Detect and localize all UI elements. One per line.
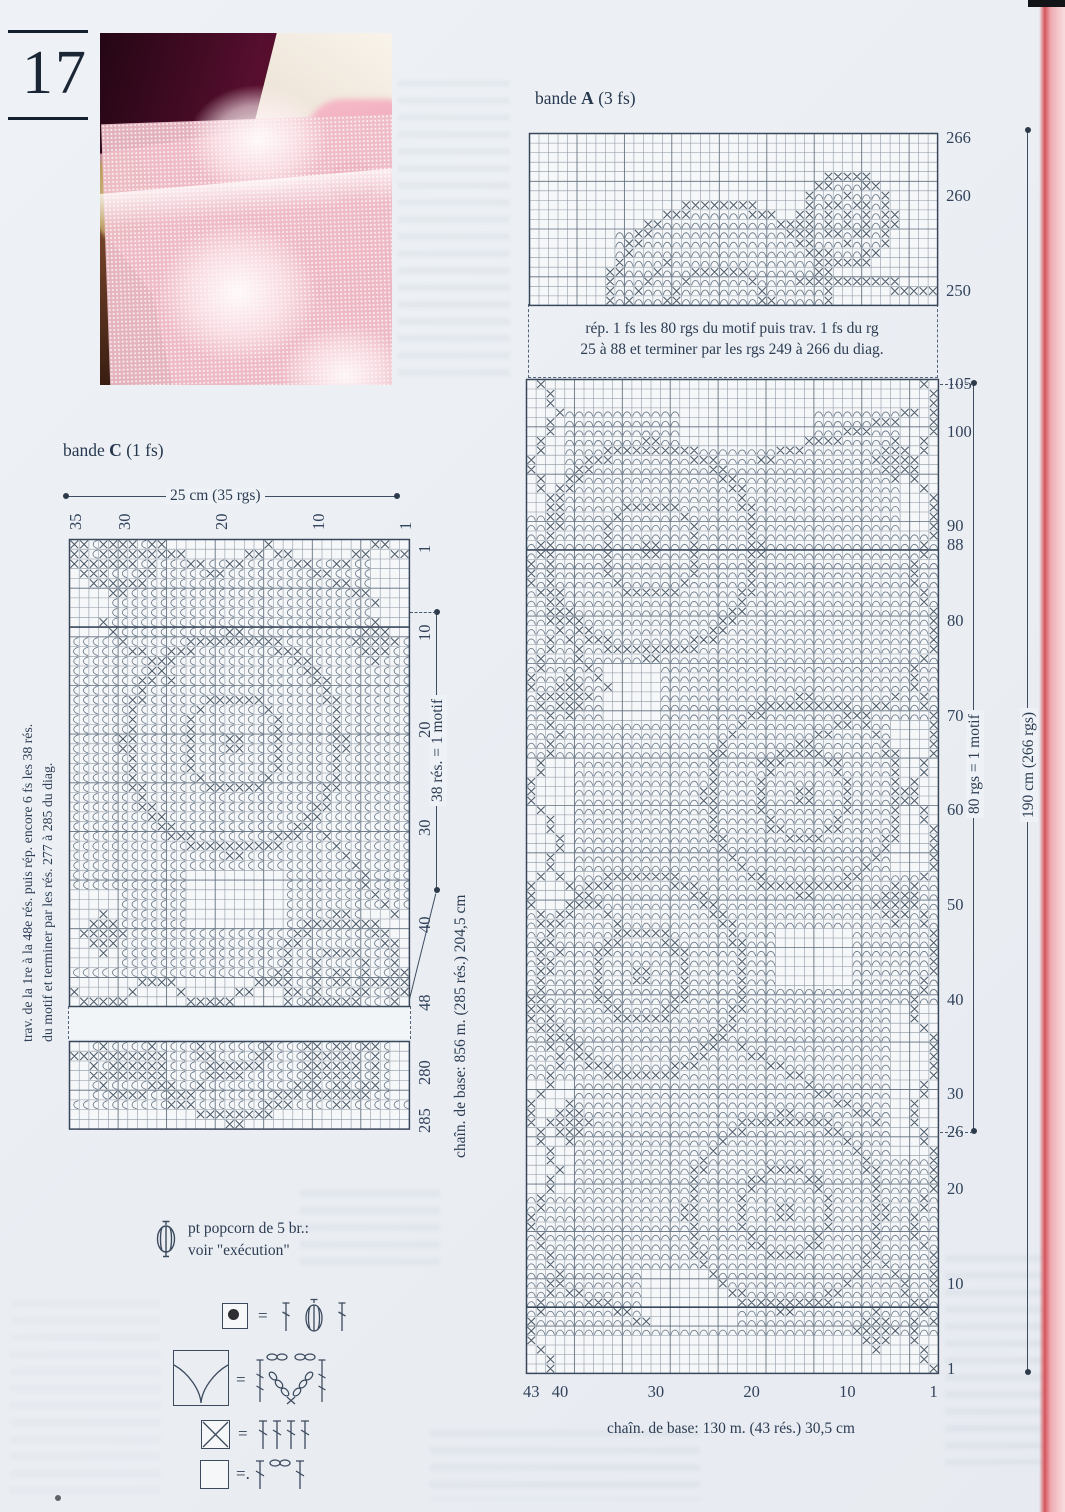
band-a-word: bande bbox=[535, 88, 577, 108]
chart-band-a-main-col-label: 40 bbox=[547, 1382, 573, 1402]
photo-lace-motif-bottom bbox=[280, 325, 392, 385]
chart-band-c-main-col-label: 1 bbox=[396, 522, 416, 530]
chart-band-c-end-row-label: 285 bbox=[415, 1108, 435, 1133]
chart-band-a-top-svg bbox=[528, 132, 940, 307]
bleedthrough-text bbox=[430, 1430, 700, 1500]
chart-band-a-main-row-label: 1 bbox=[947, 1359, 955, 1379]
dimension-dot bbox=[971, 1128, 977, 1134]
popcorn-legend-text: pt popcorn de 5 br.: voir "exécution" bbox=[188, 1218, 309, 1262]
band-c-note-line2: du motif et terminer par les rés. 277 à … bbox=[40, 763, 56, 1042]
page-number-rule-bottom bbox=[8, 117, 88, 120]
band-a-letter: A bbox=[581, 88, 594, 108]
chart-band-a-main-row-label: 40 bbox=[947, 990, 964, 1010]
chart-band-a-main-row-label: 10 bbox=[947, 1274, 964, 1294]
bleedthrough-text bbox=[10, 1300, 160, 1500]
guide-dash bbox=[940, 1132, 973, 1133]
chart-band-a-main-col-label: 30 bbox=[643, 1382, 669, 1402]
chart-band-a-main bbox=[525, 378, 940, 1380]
chart-band-c-main-row-label: 1 bbox=[415, 545, 435, 553]
chart-band-a-main-col-label: 43 bbox=[518, 1382, 544, 1402]
bleedthrough-text bbox=[398, 80, 510, 380]
band-c-title: bande C (1 fs) bbox=[63, 440, 164, 461]
chart-band-c-main-col-label: 35 bbox=[66, 514, 86, 531]
band-a-repeat-line1: rép. 1 fs les 80 rgs du motif puis trav.… bbox=[530, 318, 934, 339]
chart-band-a-main-col-label: 1 bbox=[921, 1382, 947, 1402]
legend-equals-4: =. bbox=[236, 1464, 250, 1484]
chart-band-a-main-row-label: 80 bbox=[947, 611, 964, 631]
chart-band-c-main-col-label: 10 bbox=[309, 514, 329, 531]
bedspread-photo bbox=[100, 33, 392, 385]
popcorn-stitch-icon bbox=[152, 1220, 180, 1260]
dimension-dot bbox=[63, 493, 69, 499]
chart-band-a-main-row-label: 88 bbox=[947, 535, 964, 555]
chart-band-a-main-svg bbox=[525, 378, 940, 1375]
arc-cell-curves bbox=[174, 1351, 228, 1405]
chart-band-a-main-row-label: 90 bbox=[947, 516, 964, 536]
guide-dash bbox=[410, 612, 436, 613]
popcorn-group-symbol-icon bbox=[278, 1296, 350, 1338]
magazine-page: 17 bande A (3 fs) rép. 1 fs les 80 rgs d… bbox=[0, 0, 1065, 1512]
empty-cell-icon bbox=[200, 1460, 229, 1489]
chart-band-a-top bbox=[528, 132, 940, 312]
band-c-letter: C bbox=[109, 440, 122, 460]
chart-band-c-end bbox=[68, 1040, 411, 1136]
printers-mark bbox=[55, 1495, 61, 1501]
chart-band-a-top-row-label: 250 bbox=[946, 281, 971, 301]
page-corner-shadow bbox=[1028, 0, 1065, 7]
filled-dot-cell-icon bbox=[222, 1303, 248, 1329]
chart-band-c-main-col-label: 30 bbox=[115, 514, 135, 531]
mesh-symbol-icon bbox=[252, 1454, 312, 1496]
arc-cell-icon bbox=[173, 1350, 229, 1406]
band-a-motif-dimension-label: 80 rgs = 1 motif bbox=[966, 710, 984, 818]
band-c-diagonal-connector bbox=[408, 893, 436, 1003]
chart-band-a-main-row-label: 70 bbox=[947, 706, 964, 726]
dimension-dot bbox=[1025, 127, 1031, 133]
chart-band-c-main-col-label: 20 bbox=[212, 514, 232, 531]
filled-dot bbox=[228, 1309, 239, 1320]
band-a-fs: (3 fs) bbox=[598, 88, 635, 108]
page-number: 17 bbox=[22, 38, 88, 109]
page-edge-pink bbox=[1039, 0, 1065, 1512]
band-c-note-line1: trav. de la 1re à la 48e rés. puis rép. … bbox=[20, 724, 36, 1042]
chart-band-c-main-row-label: 40 bbox=[415, 916, 435, 933]
chart-band-c-main-row-label: 30 bbox=[415, 819, 435, 836]
band-a-total-dimension-label: 190 cm (266 rgs) bbox=[1020, 708, 1038, 822]
dimension-dot bbox=[434, 887, 440, 893]
popcorn-legend-line1: pt popcorn de 5 br.: bbox=[188, 1218, 309, 1240]
chart-band-c-end-row-label: 280 bbox=[415, 1060, 435, 1085]
x-cell-cross bbox=[202, 1421, 229, 1448]
guide-dash bbox=[940, 384, 973, 385]
chart-band-c-main-row-label: 10 bbox=[415, 624, 435, 641]
popcorn-legend-line2: voir "exécution" bbox=[188, 1240, 309, 1262]
chain-arc-symbol-icon bbox=[252, 1348, 330, 1410]
chart-band-c-main-row-label: 20 bbox=[415, 722, 435, 739]
chart-band-a-top-row-label: 260 bbox=[946, 186, 971, 206]
chart-band-a-main-col-label: 10 bbox=[834, 1382, 860, 1402]
band-c-word: bande bbox=[63, 440, 105, 460]
page-number-rule-top bbox=[8, 30, 88, 33]
band-c-caption: chaîn. de base: 856 m. (285 rés.) 204,5 … bbox=[452, 895, 470, 1158]
chart-band-c-main bbox=[68, 538, 411, 1014]
band-a-title: bande A (3 fs) bbox=[535, 88, 636, 109]
bleedthrough-text bbox=[300, 1190, 440, 1275]
chart-band-c-end-svg bbox=[68, 1040, 411, 1131]
dimension-dot bbox=[394, 493, 400, 499]
band-c-motif-dimension-label: 38 rés. = 1 motif bbox=[429, 695, 447, 806]
chart-band-a-main-row-label: 20 bbox=[947, 1179, 964, 1199]
chart-band-a-main-col-label: 20 bbox=[739, 1382, 765, 1402]
band-c-width-dimension-label: 25 cm (35 rgs) bbox=[166, 487, 265, 505]
band-a-repeat-line2: 25 à 88 et terminer par les rgs 249 à 26… bbox=[530, 339, 934, 360]
chart-band-a-main-row-label: 60 bbox=[947, 800, 964, 820]
band-c-fs: (1 fs) bbox=[126, 440, 163, 460]
four-dc-symbol-icon bbox=[255, 1414, 317, 1456]
chart-band-a-main-row-label: 100 bbox=[947, 422, 972, 442]
chart-band-c-main-svg bbox=[68, 538, 411, 1009]
band-a-repeat-note: rép. 1 fs les 80 rgs du motif puis trav.… bbox=[530, 318, 934, 360]
chart-band-a-main-row-label: 30 bbox=[947, 1084, 964, 1104]
legend-equals-3: = bbox=[238, 1424, 248, 1444]
chart-band-a-main-row-label: 50 bbox=[947, 895, 964, 915]
legend-equals-1: = bbox=[258, 1306, 268, 1326]
chart-band-a-top-row-label: 266 bbox=[946, 128, 971, 148]
x-cell-icon bbox=[201, 1420, 230, 1449]
legend-equals-2: = bbox=[236, 1370, 246, 1390]
chart-band-c-main-row-label: 48 bbox=[415, 994, 435, 1011]
